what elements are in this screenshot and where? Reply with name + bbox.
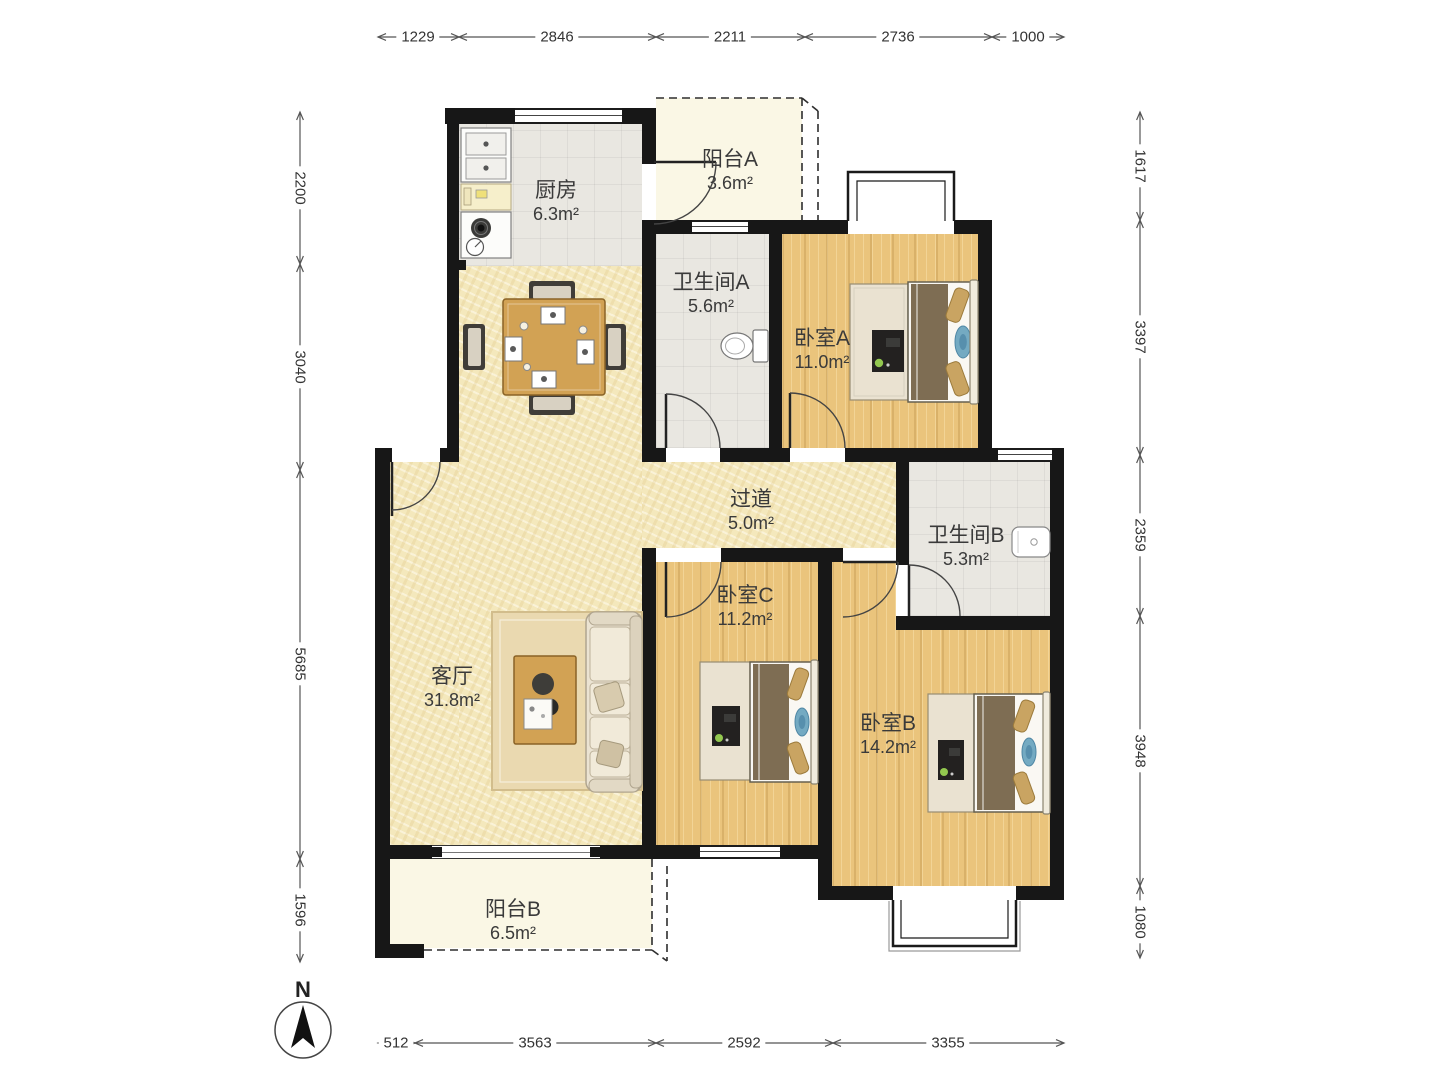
- room-area: 14.2m²: [860, 737, 916, 759]
- room-name: 卧室C: [716, 583, 773, 609]
- room-area: 31.8m²: [424, 690, 480, 712]
- room-name: 过道: [730, 487, 772, 513]
- dim-bottom-0: 512: [378, 1035, 413, 1052]
- room-name: 卫生间B: [927, 523, 1004, 549]
- room-area: 5.6m²: [688, 296, 734, 318]
- room-label-bath-a: 卫生间A 5.6m²: [672, 270, 749, 318]
- dim-left-0: 2200: [292, 166, 309, 209]
- dim-right-3: 3948: [1132, 729, 1149, 772]
- dim-bottom-2: 2592: [722, 1035, 765, 1052]
- dim-top-4: 1000: [1006, 29, 1049, 46]
- room-area: 5.0m²: [728, 513, 774, 535]
- room-label-bedroom-a: 卧室A 11.0m²: [794, 326, 850, 374]
- room-area: 3.6m²: [707, 173, 753, 195]
- dim-top-1: 2846: [535, 29, 578, 46]
- room-name: 卧室B: [860, 711, 916, 737]
- room-area: 11.2m²: [718, 609, 773, 631]
- room-label-bath-b: 卫生间B 5.3m²: [927, 523, 1004, 571]
- dim-left-3: 1596: [292, 888, 309, 931]
- dim-top-0: 1229: [396, 29, 439, 46]
- room-name: 卧室A: [794, 326, 850, 352]
- room-label-bedroom-c: 卧室C 11.2m²: [716, 583, 773, 631]
- dim-right-2: 2359: [1132, 513, 1149, 556]
- room-area: 11.0m²: [795, 352, 850, 374]
- room-name: 阳台B: [485, 897, 541, 923]
- room-area: 5.3m²: [943, 549, 989, 571]
- room-label-balcony-a: 阳台A 3.6m²: [702, 147, 758, 195]
- north-label: N: [295, 977, 311, 1003]
- dim-left-1: 3040: [292, 345, 309, 388]
- dim-right-4: 1080: [1132, 900, 1149, 943]
- room-label-kitchen: 厨房 6.3m²: [533, 178, 579, 226]
- room-label-corridor: 过道 5.0m²: [728, 487, 774, 535]
- room-name: 卫生间A: [672, 270, 749, 296]
- room-name: 客厅: [431, 664, 473, 690]
- dim-top-2: 2211: [709, 29, 751, 46]
- room-area: 6.3m²: [533, 204, 579, 226]
- room-name: 厨房: [535, 178, 577, 204]
- room-label-living: 客厅 31.8m²: [424, 664, 480, 712]
- room-label-bedroom-b: 卧室B 14.2m²: [860, 711, 916, 759]
- dim-bottom-1: 3563: [513, 1035, 556, 1052]
- dim-top-3: 2736: [876, 29, 919, 46]
- room-area: 6.5m²: [490, 923, 536, 945]
- dim-bottom-3: 3355: [926, 1035, 969, 1052]
- dim-left-2: 5685: [292, 642, 309, 685]
- dim-right-0: 1617: [1132, 144, 1149, 187]
- floorplan: 厨房 6.3m² 阳台A 3.6m² 卫生间A 5.6m² 卧室A 11.0m²…: [0, 0, 1440, 1080]
- room-name: 阳台A: [702, 147, 758, 173]
- room-label-balcony-b: 阳台B 6.5m²: [485, 897, 541, 945]
- dim-right-1: 3397: [1132, 315, 1149, 358]
